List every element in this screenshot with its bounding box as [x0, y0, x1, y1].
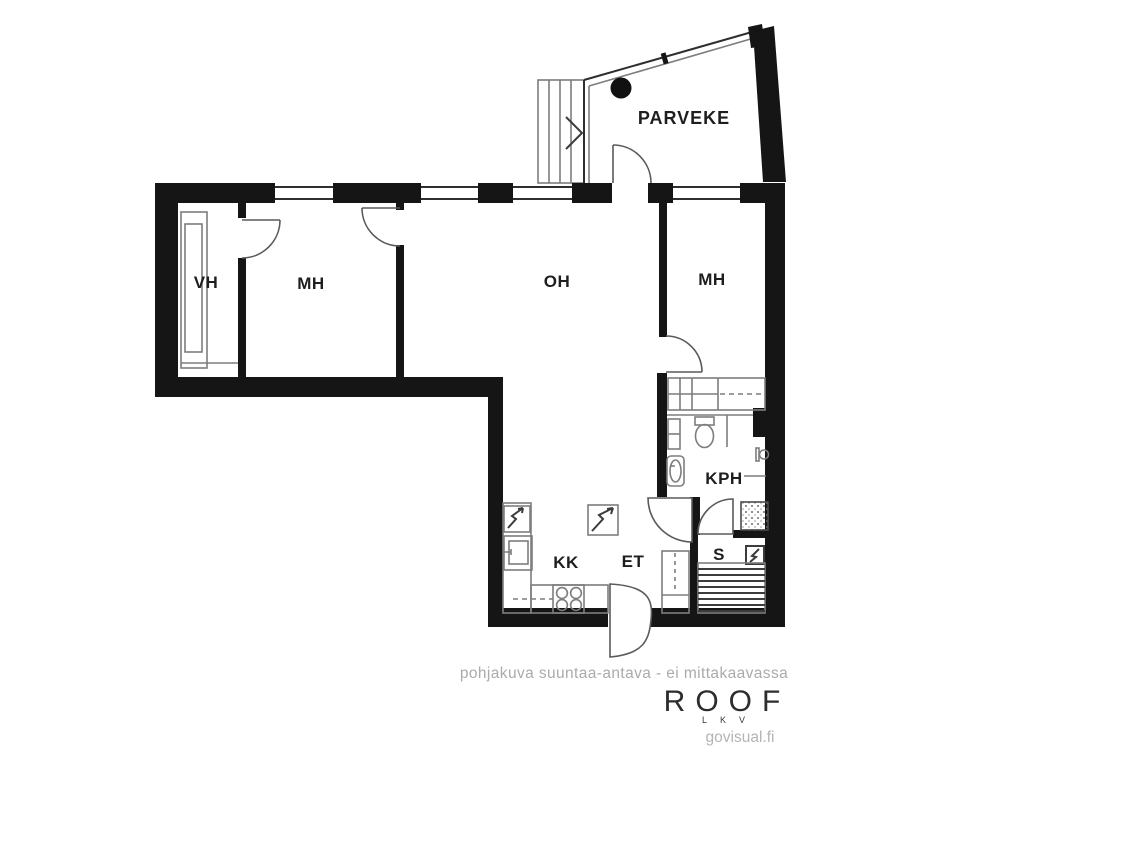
- wall-segment: [155, 183, 178, 397]
- balcony-door: [613, 145, 651, 183]
- wall-segment: [753, 408, 785, 437]
- balcony-right-wall: [753, 26, 786, 182]
- balcony: [538, 24, 786, 183]
- wall-segment: [396, 245, 404, 377]
- wall-segment: [733, 530, 765, 538]
- mh-right-door: [666, 336, 702, 372]
- room-label-vh: VH: [194, 273, 219, 292]
- sauna-heater-icon: [746, 546, 764, 564]
- mh-wardrobe-band: [668, 378, 765, 410]
- wall-segment: [659, 203, 667, 337]
- brand-logo-sub: LKV: [702, 715, 758, 725]
- wall-segment: [572, 183, 612, 203]
- walls: [155, 183, 785, 627]
- fixtures: [181, 212, 769, 613]
- sauna-fixtures: [698, 546, 765, 613]
- floorplan-drawing: PARVEKE VH MH OH MH KPH KK ET S pohjakuv…: [0, 0, 1134, 860]
- washbasin-icon: [667, 456, 684, 486]
- fridge-icon: [504, 506, 530, 532]
- electrical-panel-icon: [588, 505, 618, 535]
- sauna-door: [698, 499, 733, 534]
- kitchen-sink-icon: [504, 536, 532, 570]
- wall-segment: [396, 203, 404, 210]
- sauna-benches: [698, 563, 765, 613]
- room-label-parveke: PARVEKE: [638, 108, 730, 128]
- footer: pohjakuva suuntaa-antava - ei mittakaava…: [460, 665, 790, 746]
- room-label-oh: OH: [544, 272, 571, 291]
- stairs-icon: [538, 80, 584, 183]
- wall-segment: [478, 183, 513, 203]
- room-label-mh-right: MH: [698, 270, 725, 289]
- wall-segment: [765, 183, 785, 627]
- wall-segment: [657, 373, 667, 497]
- wall-segment: [488, 377, 503, 627]
- room-label-kk: KK: [553, 553, 579, 572]
- window: [513, 187, 572, 199]
- column-dot: [611, 78, 632, 99]
- window: [421, 187, 478, 199]
- shower-area: [741, 502, 768, 530]
- kph-cabinet: [668, 419, 680, 449]
- brand-logo-text: ROOF: [664, 685, 791, 718]
- floorplan-page: PARVEKE VH MH OH MH KPH KK ET S pohjakuv…: [0, 0, 1134, 860]
- room-label-mh-left: MH: [297, 274, 324, 293]
- room-label-s: S: [713, 545, 725, 564]
- wall-segment: [648, 183, 673, 203]
- wall-segment: [488, 608, 608, 627]
- disclaimer-text: pohjakuva suuntaa-antava - ei mittakaava…: [460, 665, 788, 682]
- wall-segment: [333, 183, 421, 203]
- website-text: govisual.fi: [706, 729, 775, 746]
- toilet-icon: [695, 417, 714, 448]
- wall-segment: [238, 258, 246, 377]
- room-label-et: ET: [622, 552, 645, 571]
- wall-segment: [238, 203, 246, 218]
- vh-door: [242, 220, 280, 258]
- mh-left-door: [362, 208, 400, 246]
- wall-segment: [155, 377, 503, 397]
- window: [673, 187, 740, 199]
- window: [275, 187, 333, 199]
- kph-door: [648, 498, 692, 542]
- wall-segment: [690, 532, 698, 613]
- room-label-kph: KPH: [705, 469, 742, 488]
- entrance-door: [610, 584, 651, 657]
- et-wardrobe: [662, 551, 689, 613]
